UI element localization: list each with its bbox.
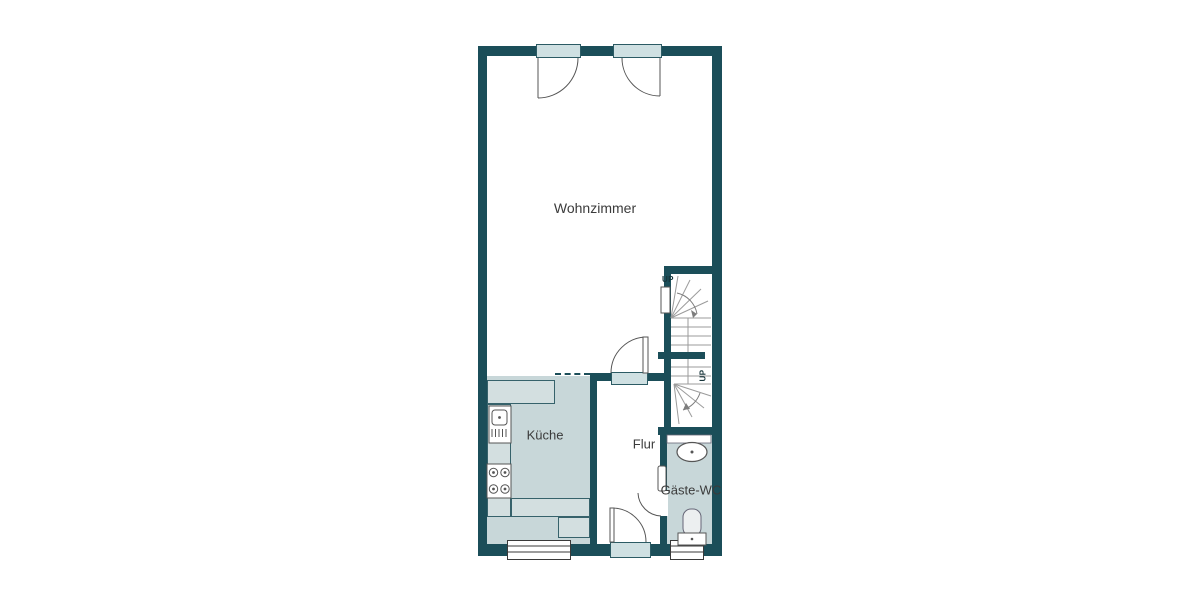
floor-plan: Wohnzimmer Küche Flur Gäste-WC UP UP	[478, 46, 722, 556]
french-door-right-swing-icon	[622, 58, 660, 96]
wc-shelf	[667, 435, 711, 443]
toilet-icon	[678, 509, 706, 545]
stove-icon	[487, 464, 511, 498]
room-label-wohnzimmer: Wohnzimmer	[554, 200, 636, 216]
room-label-gaeste-wc: Gäste-WC	[661, 483, 722, 498]
entrance-door-icon	[610, 508, 646, 542]
window-mullions	[507, 546, 704, 552]
door-wohnzimmer-flur-icon	[611, 337, 648, 373]
washbasin-icon	[677, 443, 707, 462]
stair-landing-edge	[661, 287, 670, 313]
french-door-left-swing-icon	[538, 58, 578, 98]
plan-geometry	[478, 46, 722, 556]
stair-up-label-top: UP	[662, 275, 674, 284]
screenshot-stage: Wohnzimmer Küche Flur Gäste-WC UP UP	[0, 0, 1200, 600]
stair-upper-flight	[671, 276, 711, 352]
stair-up-label-bottom: UP	[698, 370, 707, 382]
room-label-kueche: Küche	[527, 428, 564, 443]
room-label-flur: Flur	[633, 437, 655, 452]
kitchen-sink-icon	[489, 406, 511, 443]
